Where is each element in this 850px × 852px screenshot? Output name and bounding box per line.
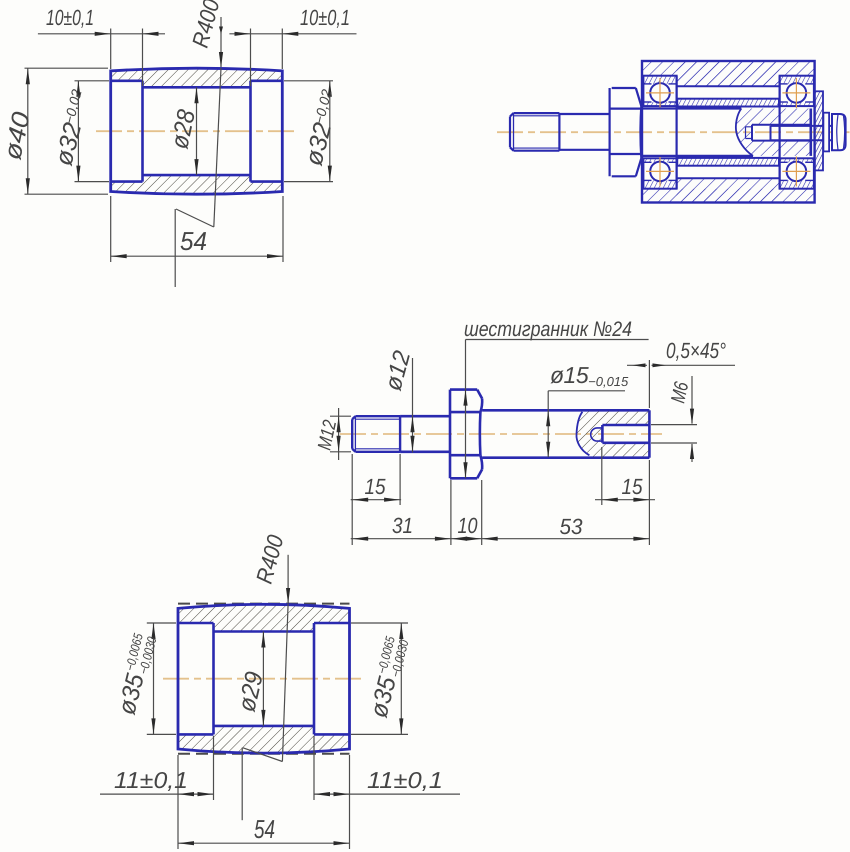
- svg-text:шестигранник №24: шестигранник №24: [464, 318, 632, 341]
- svg-text:0,5×45°: 0,5×45°: [666, 338, 726, 363]
- svg-text:31: 31: [392, 513, 413, 538]
- svg-text:15: 15: [365, 474, 387, 499]
- svg-text:53: 53: [560, 514, 584, 539]
- svg-text:10±0,1: 10±0,1: [300, 5, 350, 30]
- svg-text:10: 10: [458, 513, 479, 538]
- svg-text:10±0,1: 10±0,1: [46, 5, 94, 30]
- svg-text:15: 15: [622, 474, 644, 499]
- svg-text:11±0,1: 11±0,1: [367, 767, 443, 793]
- svg-text:54: 54: [180, 226, 207, 256]
- svg-text:11±0,1: 11±0,1: [114, 767, 188, 793]
- svg-text:54: 54: [254, 814, 275, 844]
